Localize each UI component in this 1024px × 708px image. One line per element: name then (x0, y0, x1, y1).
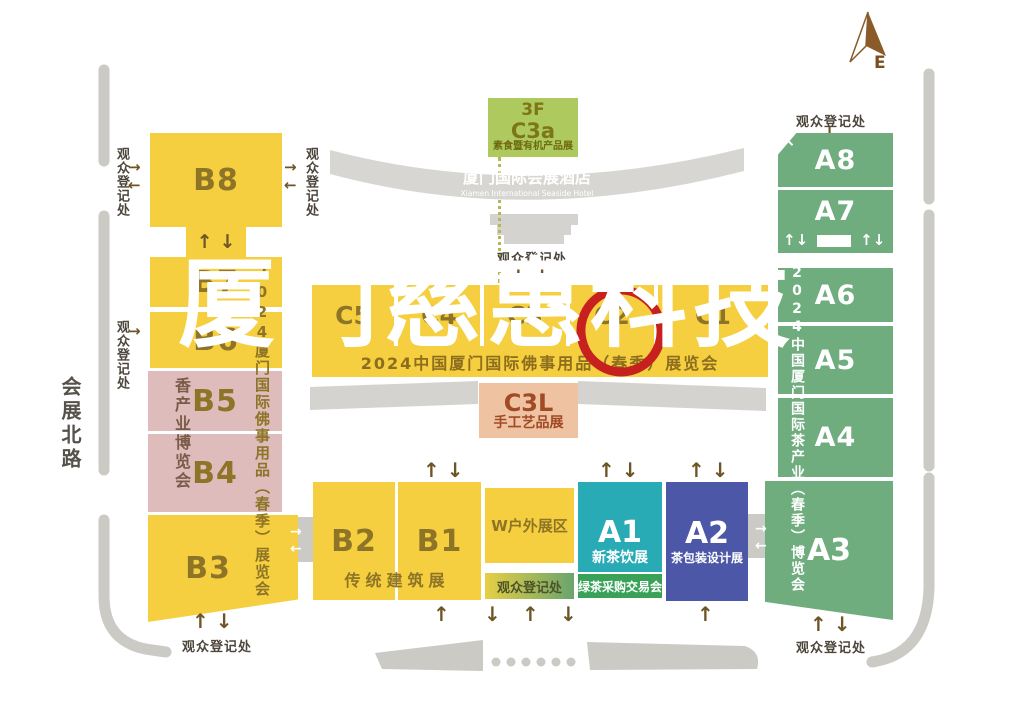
exhibition-floor-plan: E 会展北路 3F C3a 素食暨有机产品展 厦门国际会展酒店 Xiamen I… (0, 0, 1024, 708)
watermark-text: 厦门慈惠科技 (178, 252, 796, 359)
